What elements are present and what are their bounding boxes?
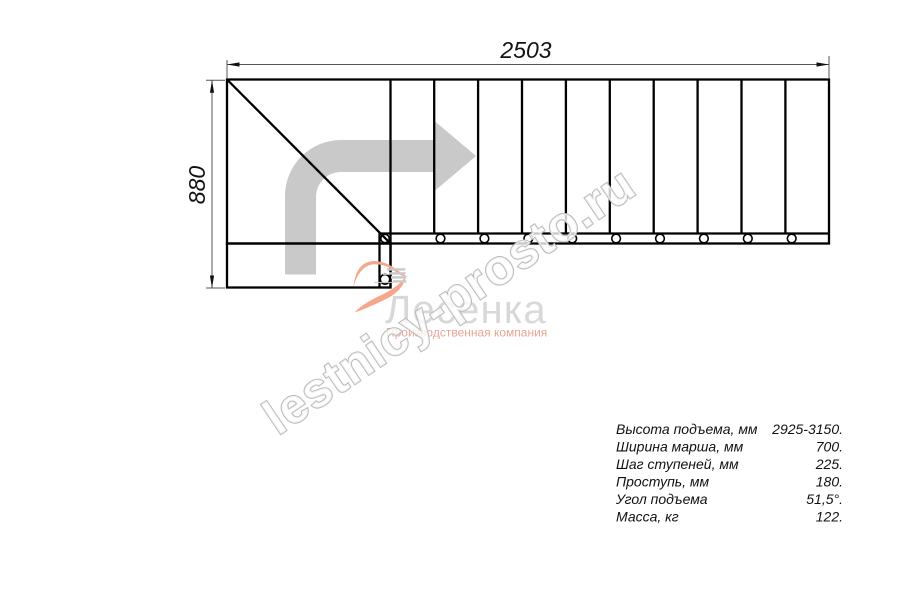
svg-text:122.: 122. [816,509,843,525]
svg-text:Шаг ступеней, мм: Шаг ступеней, мм [616,456,739,472]
svg-text:2503: 2503 [499,37,551,63]
svg-text:880: 880 [184,166,210,205]
svg-text:Проступь, мм: Проступь, мм [616,474,710,490]
svg-text:Масса, кг: Масса, кг [616,509,679,525]
svg-text:180.: 180. [816,474,843,490]
svg-text:2925-3150.: 2925-3150. [771,421,843,437]
svg-text:700.: 700. [816,439,843,455]
svg-text:Угол подъема: Угол подъема [615,491,708,507]
svg-text:Ширина марша, мм: Ширина марша, мм [616,439,744,455]
svg-text:225.: 225. [815,456,843,472]
svg-text:51,5°.: 51,5°. [806,491,843,507]
svg-text:Высота подъема, мм: Высота подъема, мм [616,421,758,437]
